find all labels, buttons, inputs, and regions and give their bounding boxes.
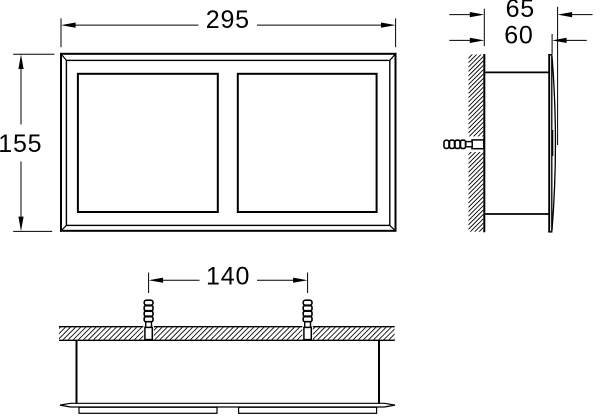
- svg-text:60: 60: [504, 21, 533, 49]
- svg-text:295: 295: [206, 6, 250, 34]
- svg-text:65: 65: [506, 0, 535, 23]
- svg-text:155: 155: [0, 130, 42, 158]
- svg-text:140: 140: [206, 262, 250, 290]
